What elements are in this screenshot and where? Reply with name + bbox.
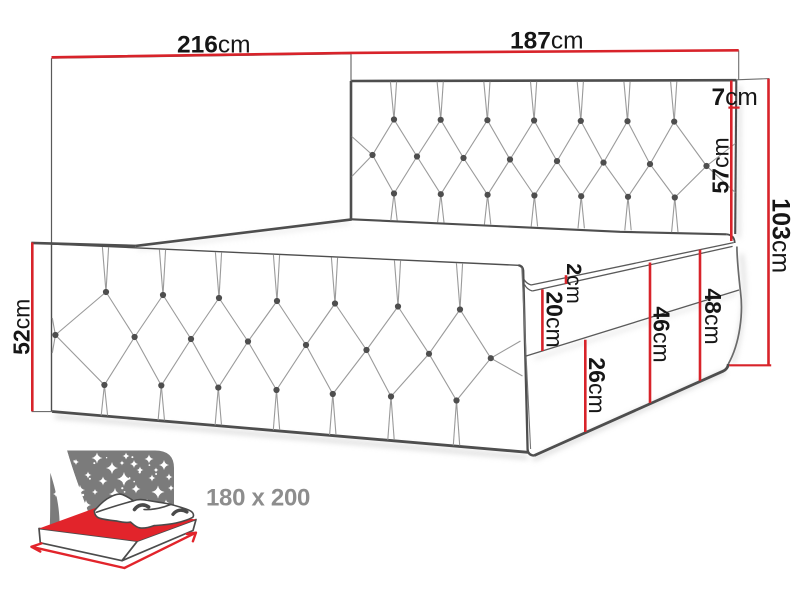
svg-text:57cm: 57cm (708, 137, 734, 193)
svg-text:20cm: 20cm (542, 291, 568, 347)
svg-text:48cm: 48cm (700, 288, 726, 344)
svg-text:187cm: 187cm (510, 27, 584, 54)
svg-text:7cm: 7cm (712, 84, 758, 111)
svg-text:216cm: 216cm (177, 32, 251, 59)
svg-text:46cm: 46cm (649, 306, 675, 362)
svg-text:52cm: 52cm (9, 299, 35, 355)
svg-text:103cm: 103cm (767, 198, 795, 273)
svg-text:180 x 200: 180 x 200 (206, 485, 310, 512)
svg-text:26cm: 26cm (584, 357, 610, 413)
